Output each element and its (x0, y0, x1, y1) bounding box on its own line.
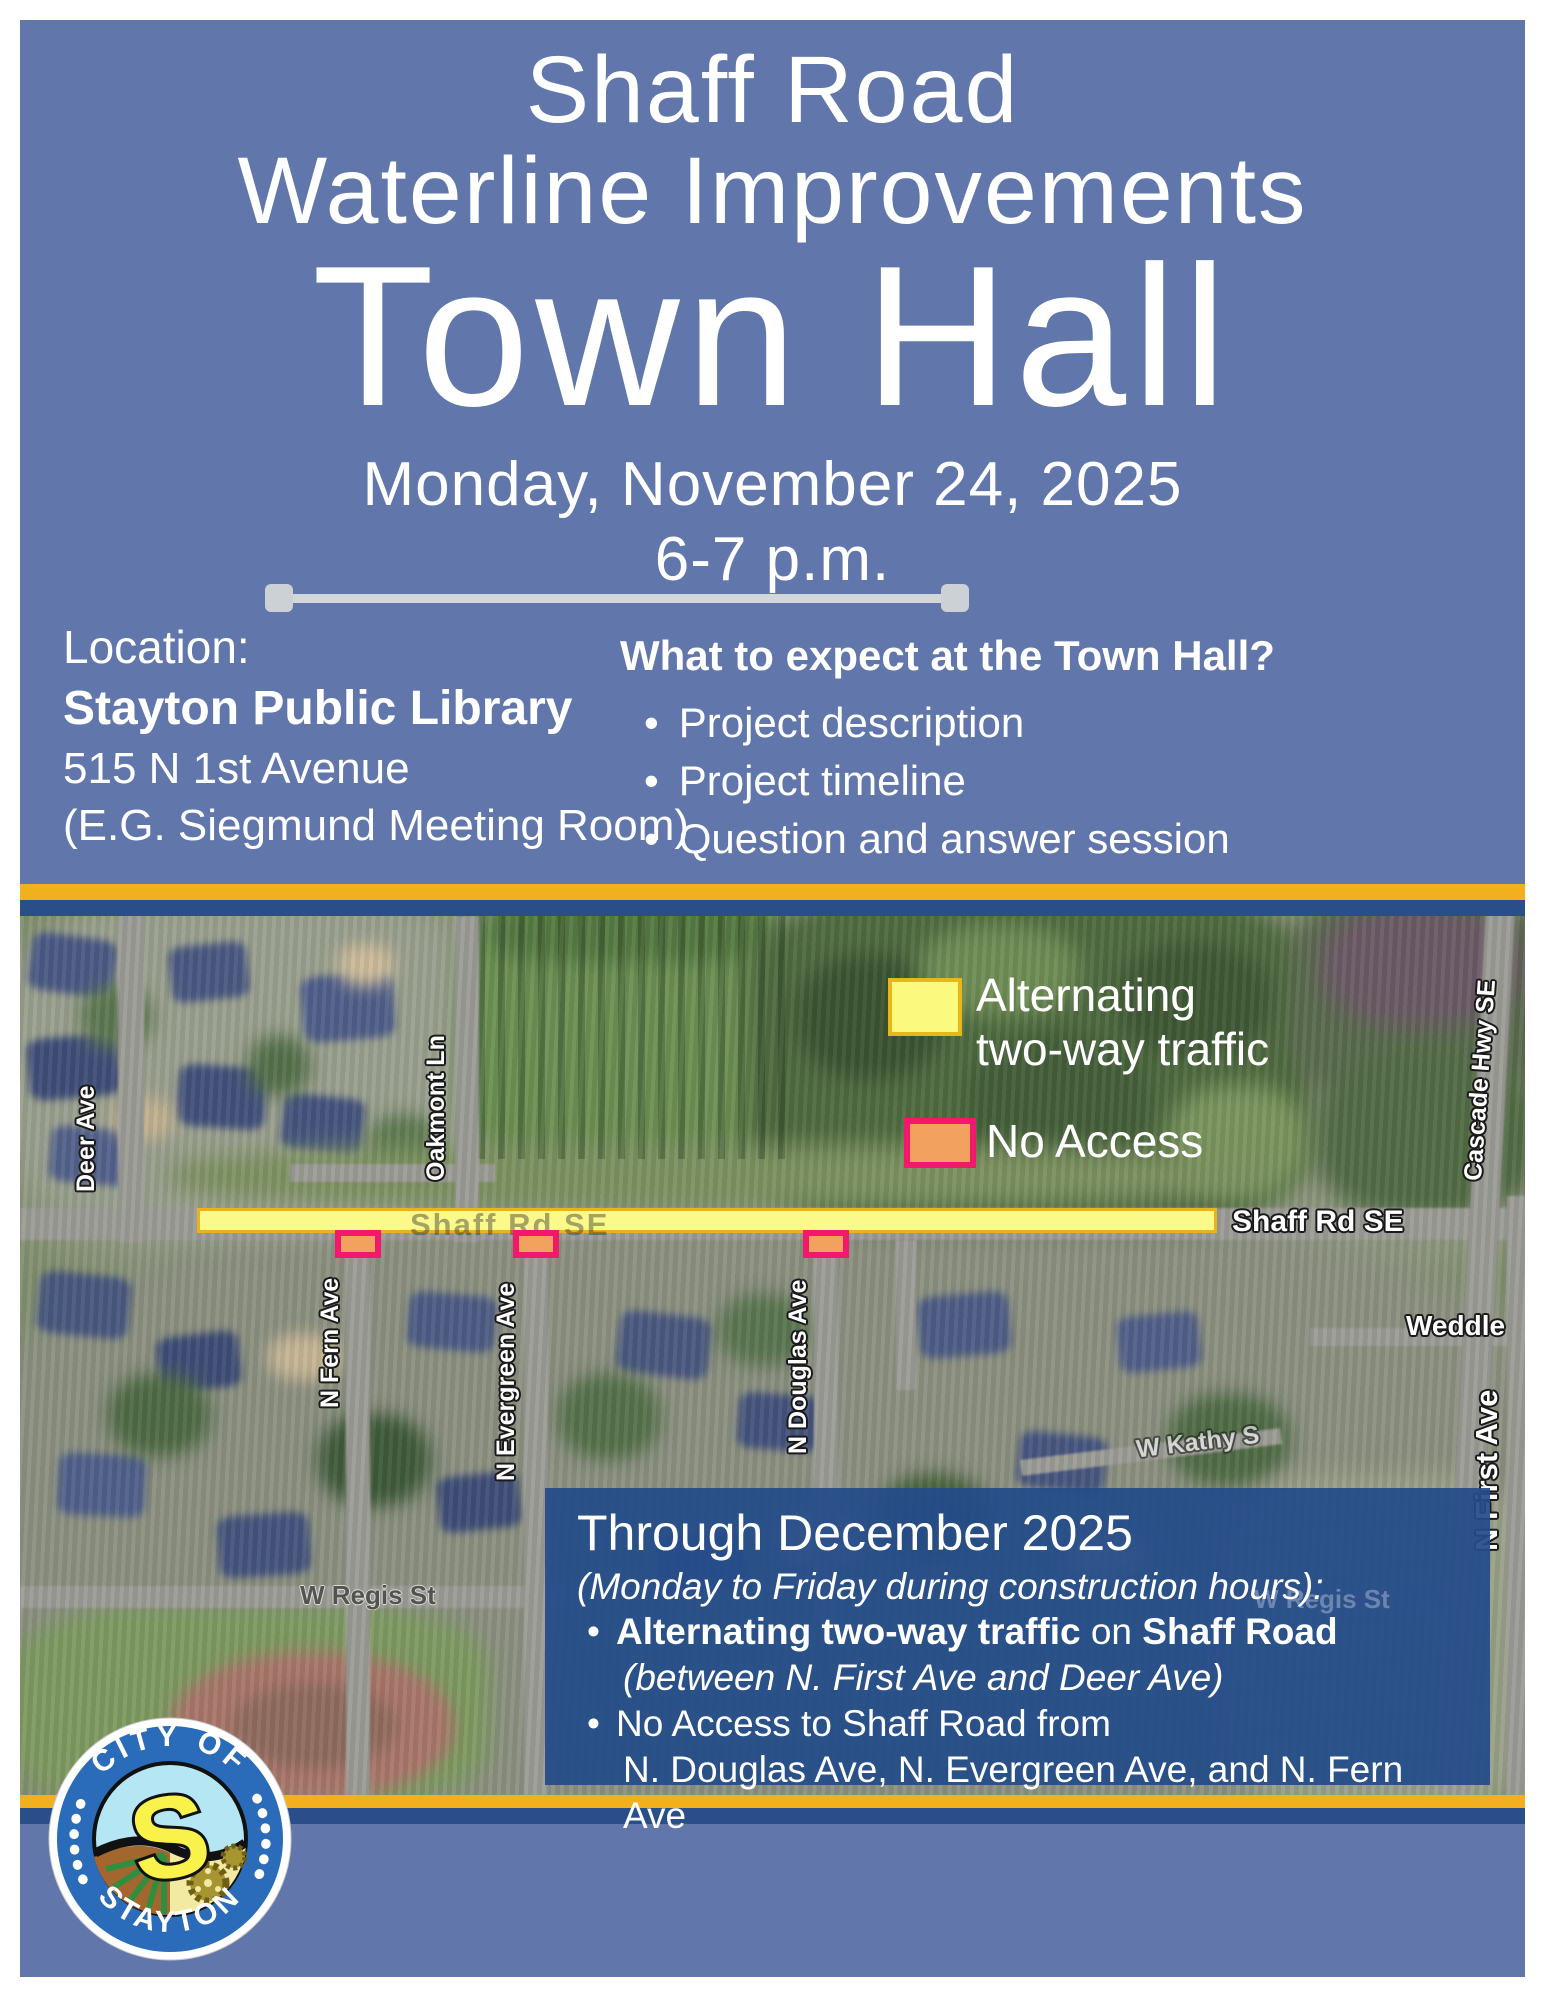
terrain-blob (915, 1290, 1012, 1360)
road (455, 916, 479, 1242)
location-label: Location: (63, 618, 689, 678)
terrain-blob (338, 944, 394, 986)
street-label-w-regis-st-left: W Regis St (300, 1580, 436, 1611)
terrain-blob (167, 940, 250, 1004)
road (118, 916, 144, 1242)
street-label-oakmont-ln: Oakmont Ln (422, 1026, 451, 1191)
location-address: 515 N 1st Avenue (63, 740, 689, 797)
terrain-blob (558, 1374, 660, 1460)
construction-notice-box: Through December 2025 (Monday to Friday … (545, 1488, 1490, 1785)
street-label-n-evergreen-ave: N Evergreen Ave (492, 1252, 521, 1512)
legend-swatch-alternating (888, 978, 962, 1036)
terrain-blob (108, 1374, 210, 1456)
street-label-shaff-rd: Shaff Rd SE (1232, 1205, 1404, 1239)
poster: Shaff Road Waterline Improvements Town H… (20, 20, 1525, 1977)
notice-plain-text: on (1081, 1611, 1143, 1652)
terrain-blob (279, 1092, 366, 1156)
city-of-stayton-logo: S CITY OF STAYTON (48, 1717, 292, 1961)
city-seal-icon: S CITY OF STAYTON (48, 1717, 292, 1961)
notice-bullet-1: Alternating two-way traffic on Shaff Roa… (577, 1609, 1458, 1655)
location-name: Stayton Public Library (63, 678, 689, 740)
notice-bullet-2: No Access to Shaff Road from (577, 1701, 1458, 1747)
notice-title: Through December 2025 (577, 1506, 1458, 1560)
terrain-blob (56, 1452, 147, 1519)
what-to-expect-heading: What to expect at the Town Hall? (620, 632, 1510, 680)
list-item: Project description (620, 694, 1510, 752)
divider-endpoint-left (265, 584, 293, 612)
road (1507, 1196, 1525, 1795)
terrain-blob (216, 1511, 312, 1579)
legend-label-line: Alternating (976, 968, 1269, 1022)
flyer-page: Shaff Road Waterline Improvements Town H… (0, 0, 1545, 2000)
list-item: Project timeline (620, 752, 1510, 810)
street-label-deer-ave: Deer Ave (72, 1054, 101, 1224)
navy-bar-top (20, 900, 1525, 916)
event-date: Monday, November 24, 2025 (20, 451, 1525, 519)
notice-bullet-2-text: No Access to Shaff Road from (616, 1701, 1111, 1747)
gold-bar-top (20, 884, 1525, 900)
list-item-label: Project timeline (679, 752, 966, 810)
header-stack: Shaff Road Waterline Improvements Town H… (20, 40, 1525, 594)
notice-bullet-2-line-2: N. Douglas Ave, N. Evergreen Ave, and N.… (577, 1747, 1458, 1839)
street-label-weddle: Weddle (1406, 1310, 1505, 1342)
what-to-expect-list: Project description Project timeline Que… (620, 694, 1510, 868)
terrain-blob (248, 1036, 310, 1096)
road (20, 1586, 565, 1608)
street-label-w-regis-st-right: W Regis St (1254, 1584, 1390, 1615)
street-label-n-fern-ave: N Fern Ave (316, 1258, 345, 1428)
legend-label-line: two-way traffic (976, 1022, 1269, 1076)
street-label-shaff-rd-ghost: Shaff Rd SE (410, 1207, 609, 1243)
title-town-hall: Town Hall (20, 237, 1525, 437)
terrain-blob (1115, 1310, 1202, 1374)
notice-bold-text: Alternating two-way traffic (616, 1611, 1081, 1652)
terrain-blob (35, 1269, 133, 1340)
terrain-blob (406, 1290, 499, 1353)
list-item-label: Project description (679, 694, 1025, 752)
what-to-expect-block: What to expect at the Town Hall? Project… (620, 632, 1510, 868)
list-item-label: Question and answer session (679, 810, 1230, 868)
legend-swatch-no-access (904, 1118, 976, 1168)
no-access-marker-fern (335, 1230, 381, 1258)
road (346, 1240, 370, 1795)
orchard-texture (458, 916, 793, 1159)
divider-line (279, 594, 954, 603)
header-section: Shaff Road Waterline Improvements Town H… (20, 20, 1525, 884)
divider-endpoint-right (941, 584, 969, 612)
list-item: Question and answer session (620, 810, 1510, 868)
road (896, 1240, 916, 1390)
street-label-n-douglas-ave: N Douglas Ave (784, 1252, 813, 1482)
legend-label-alternating: Alternating two-way traffic (976, 968, 1269, 1077)
title-line-1: Shaff Road (20, 40, 1525, 141)
location-room: (E.G. Siegmund Meeting Room) (63, 797, 689, 854)
terrain-blob (615, 1309, 714, 1382)
location-block: Location: Stayton Public Library 515 N 1… (63, 618, 689, 855)
notice-bold-text: Shaff Road (1142, 1611, 1337, 1652)
notice-bullet-1-text: Alternating two-way traffic on Shaff Roa… (616, 1609, 1338, 1655)
event-time: 6-7 p.m. (20, 526, 1525, 594)
legend-label-no-access: No Access (986, 1114, 1203, 1168)
notice-bullet-1-line-2: (between N. First Ave and Deer Ave) (577, 1655, 1458, 1701)
